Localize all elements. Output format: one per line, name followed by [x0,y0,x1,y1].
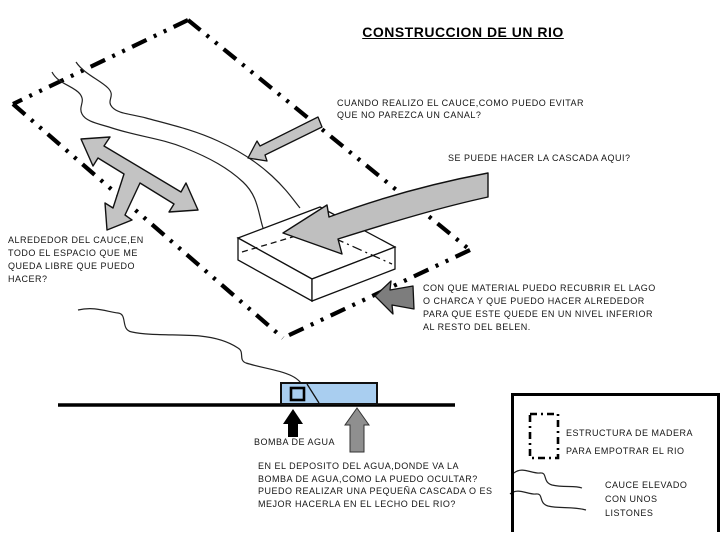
page-title: CONSTRUCCION DE UN RIO [338,24,588,40]
canal-arrow-icon [248,117,322,161]
legend-label-estructura: ESTRUCTURA DE MADERA PARA EMPOTRAR EL RI… [566,424,716,460]
label-bomba-de-agua: BOMBA DE AGUA [254,436,374,448]
question-material: CON QUE MATERIAL PUEDO RECUBRIR EL LAGO … [423,282,720,334]
question-alrededor: ALREDEDOR DEL CAUCE,EN TODO EL ESPACIO Q… [8,234,178,286]
river-bank-left [52,72,263,228]
board-edge-top-left [13,20,188,104]
water-pump [291,388,304,400]
river-to-deposit-line [78,309,301,383]
question-canal: CUANDO REALIZO EL CAUCE,COMO PUEDO EVITA… [337,98,637,121]
space-around-arrow-icon [81,137,198,230]
diagram-page: CONSTRUCCION DE UN RIO CUANDO REALIZO EL… [0,0,720,540]
question-cascada: SE PUEDE HACER LA CASCADA AQUI? [448,152,678,164]
pump-arrow-icon [283,409,303,437]
legend-label-cauce: CAUCE ELEVADO CON UNOS LISTONES [605,478,715,520]
board-edge-bottom-left [13,104,283,338]
